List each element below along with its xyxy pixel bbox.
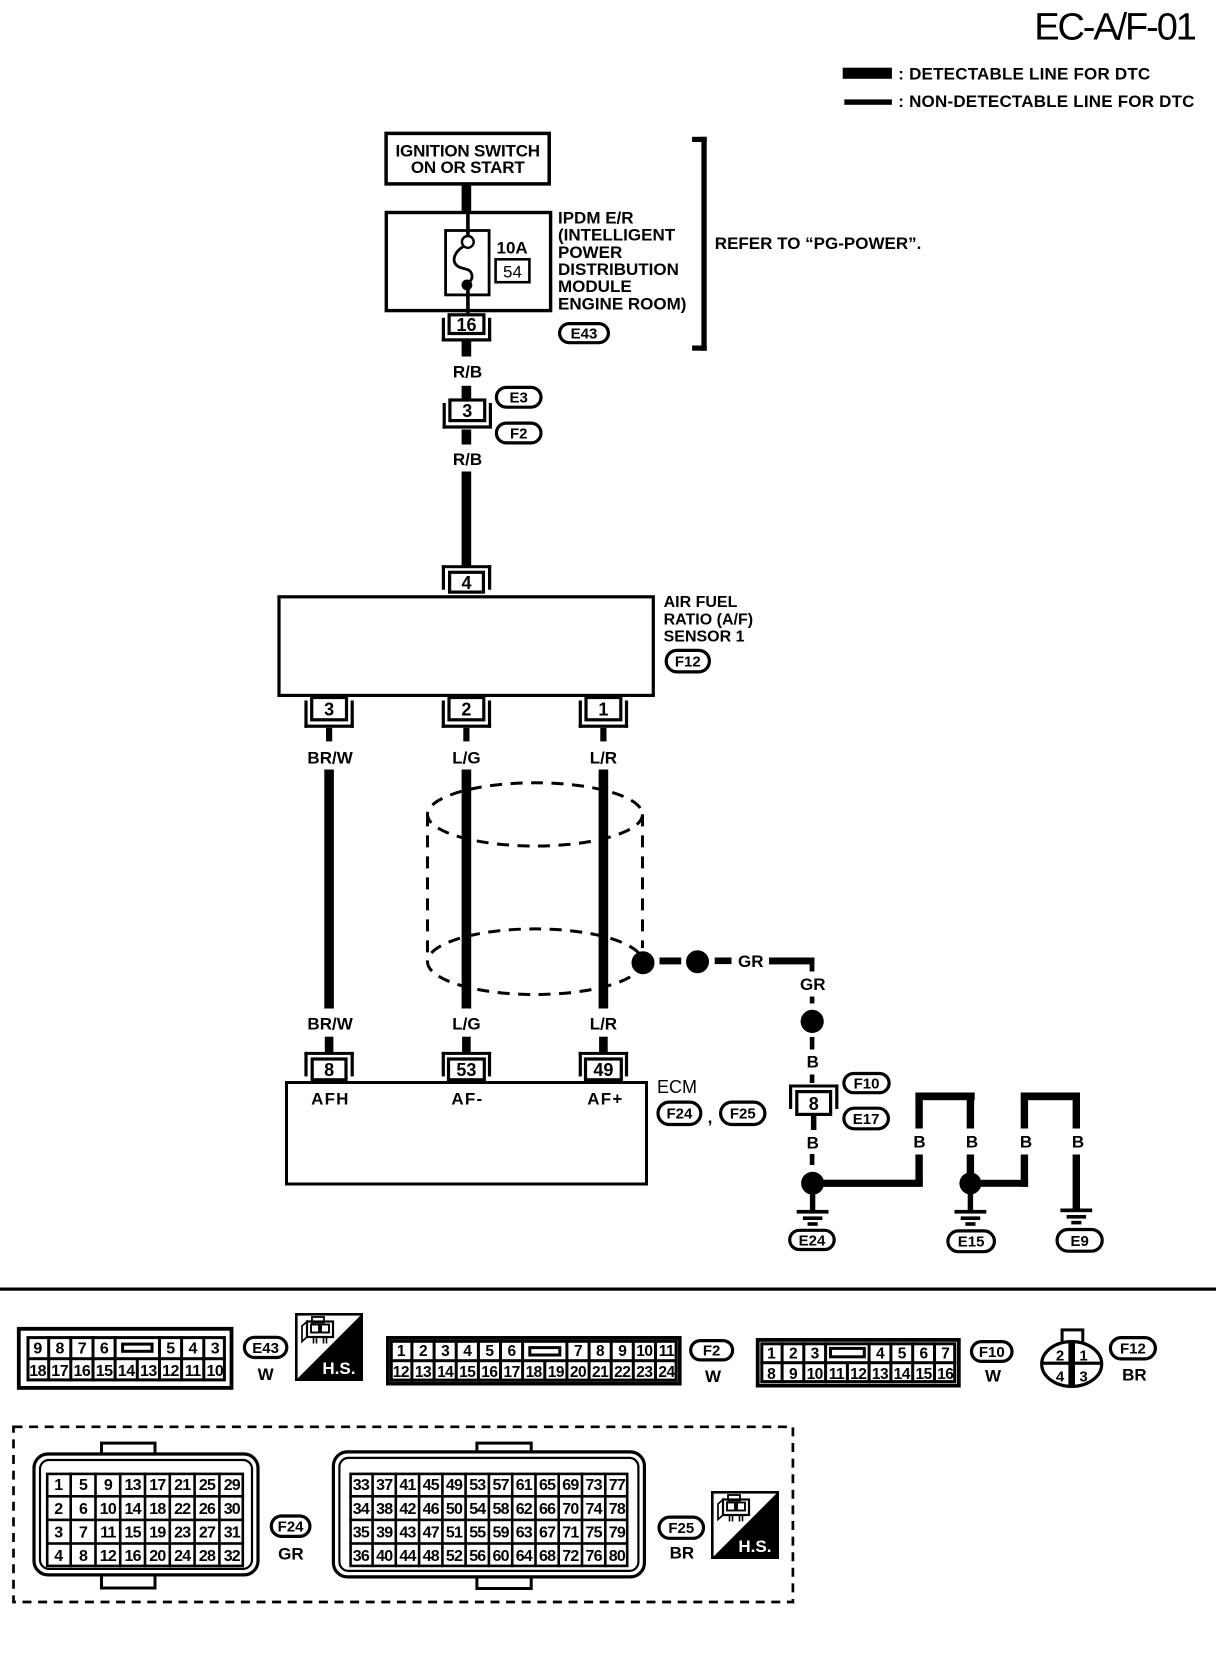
svg-text:64: 64 [516,1548,533,1565]
svg-text:1: 1 [767,1346,776,1363]
svg-text:47: 47 [423,1525,440,1542]
svg-text:AIR FUEL: AIR FUEL [664,594,738,611]
svg-text:7: 7 [78,1340,87,1357]
svg-text:34: 34 [353,1501,370,1518]
svg-text:73: 73 [585,1477,602,1494]
svg-text:66: 66 [539,1501,556,1518]
svg-text:SENSOR 1: SENSOR 1 [664,629,745,646]
svg-text:25: 25 [199,1477,216,1494]
svg-text:12: 12 [850,1366,866,1383]
svg-text:46: 46 [423,1501,440,1518]
svg-text:12: 12 [100,1548,117,1565]
svg-text:8: 8 [596,1343,605,1360]
svg-text:72: 72 [562,1548,579,1565]
svg-text:14: 14 [894,1366,911,1383]
svg-text:21: 21 [174,1477,191,1494]
svg-text:3: 3 [211,1340,220,1357]
svg-text:2: 2 [789,1346,797,1363]
svg-text:B: B [807,1134,819,1153]
svg-text:18: 18 [29,1363,46,1380]
svg-text:33: 33 [353,1477,370,1494]
svg-text:4: 4 [54,1548,63,1565]
svg-text:1: 1 [598,699,608,719]
svg-text:29: 29 [224,1477,241,1494]
svg-text:1: 1 [397,1343,406,1360]
svg-text:60: 60 [492,1548,509,1565]
svg-text:11: 11 [829,1366,845,1383]
svg-text:6: 6 [920,1346,929,1363]
svg-text:W: W [705,1367,722,1386]
svg-text:3: 3 [324,699,334,719]
svg-text:9: 9 [104,1477,113,1494]
svg-text:BR/W: BR/W [307,1015,353,1034]
svg-text:10: 10 [100,1501,117,1518]
svg-text:17: 17 [503,1364,519,1381]
svg-text:1: 1 [54,1477,63,1494]
svg-text:70: 70 [562,1501,579,1518]
svg-text:52: 52 [446,1548,463,1565]
svg-text:2: 2 [419,1343,427,1360]
svg-text:6: 6 [79,1501,88,1518]
svg-text:E43: E43 [571,326,598,343]
svg-text:B: B [807,1053,819,1072]
svg-text:13: 13 [415,1364,432,1381]
svg-text:54: 54 [469,1501,486,1518]
svg-text:76: 76 [585,1548,602,1565]
svg-text:8: 8 [55,1340,64,1357]
svg-text:75: 75 [585,1525,602,1542]
svg-text:L/G: L/G [452,748,480,767]
svg-text:10: 10 [807,1366,823,1383]
svg-text:F2: F2 [510,425,528,442]
svg-text:10A: 10A [497,238,528,257]
svg-text:19: 19 [149,1525,166,1542]
svg-text:E24: E24 [799,1232,826,1249]
svg-text:POWER: POWER [558,243,622,262]
svg-text:13: 13 [124,1477,141,1494]
svg-text:R/B: R/B [453,450,482,469]
svg-text:65: 65 [539,1477,556,1494]
svg-text:21: 21 [592,1364,609,1381]
svg-text:3: 3 [811,1346,820,1363]
svg-text:44: 44 [399,1548,416,1565]
svg-text:3: 3 [462,401,472,421]
svg-text:53: 53 [469,1477,486,1494]
svg-text:50: 50 [446,1501,463,1518]
svg-text:11: 11 [659,1343,675,1360]
svg-text:20: 20 [570,1364,586,1381]
svg-text:15: 15 [96,1363,113,1380]
svg-text:68: 68 [539,1548,556,1565]
svg-text:49: 49 [446,1477,463,1494]
svg-text:37: 37 [376,1477,393,1494]
svg-text:F25: F25 [668,1520,694,1537]
svg-text:39: 39 [376,1525,393,1542]
svg-text:5: 5 [898,1346,907,1363]
svg-text:41: 41 [399,1477,416,1494]
svg-text:L/R: L/R [590,748,617,767]
svg-text:4: 4 [463,1343,472,1360]
svg-text:71: 71 [562,1525,579,1542]
svg-text:15: 15 [915,1366,932,1383]
svg-text:B: B [913,1133,925,1152]
svg-text:12: 12 [162,1363,179,1380]
svg-text:38: 38 [376,1501,393,1518]
svg-text:11: 11 [100,1525,116,1542]
svg-text:77: 77 [609,1477,626,1494]
svg-text:10: 10 [636,1343,652,1360]
svg-text:30: 30 [224,1501,241,1518]
svg-text:AF-: AF- [451,1089,483,1108]
svg-text:16: 16 [124,1548,141,1565]
svg-text:16: 16 [937,1366,954,1383]
svg-text:4: 4 [188,1340,197,1357]
svg-text:2: 2 [461,699,471,719]
svg-text:15: 15 [459,1364,476,1381]
svg-text:7: 7 [79,1525,88,1542]
svg-text:17: 17 [51,1363,68,1380]
svg-text:16: 16 [74,1363,91,1380]
svg-text:28: 28 [199,1548,216,1565]
svg-text:E15: E15 [958,1234,985,1251]
svg-text:14: 14 [437,1364,454,1381]
svg-text:80: 80 [609,1548,626,1565]
svg-text:B: B [1020,1133,1032,1152]
svg-text:F25: F25 [730,1106,756,1123]
svg-text:ECM: ECM [657,1077,697,1097]
svg-text:23: 23 [636,1364,653,1381]
svg-text:53: 53 [456,1060,476,1080]
svg-text:54: 54 [503,263,522,282]
svg-text:40: 40 [376,1548,393,1565]
svg-text:E43: E43 [252,1340,279,1357]
svg-text:F12: F12 [1120,1341,1146,1358]
svg-text:24: 24 [658,1364,675,1381]
svg-text:ON OR START: ON OR START [411,158,525,177]
svg-text:REFER TO “PG-POWER”.: REFER TO “PG-POWER”. [715,234,922,253]
svg-text:AF+: AF+ [587,1089,623,1108]
svg-text:B: B [966,1133,978,1152]
svg-text:57: 57 [492,1477,509,1494]
svg-text:GR: GR [738,952,764,971]
svg-text:,: , [708,1108,713,1127]
svg-text:8: 8 [767,1366,776,1383]
svg-text:W: W [985,1367,1002,1386]
svg-text:4: 4 [1056,1368,1065,1385]
svg-text:B: B [1072,1133,1084,1152]
svg-text:56: 56 [469,1548,486,1565]
svg-text:32: 32 [224,1548,241,1565]
svg-text:74: 74 [585,1501,602,1518]
svg-text:L/R: L/R [590,1015,617,1034]
svg-text:67: 67 [539,1525,556,1542]
svg-text:3: 3 [441,1343,450,1360]
svg-text:35: 35 [353,1525,370,1542]
svg-text:18: 18 [526,1364,543,1381]
svg-text:F2: F2 [703,1343,721,1360]
svg-text:5: 5 [166,1340,175,1357]
svg-text:F10: F10 [979,1344,1005,1361]
svg-text:8: 8 [809,1094,819,1114]
svg-text:H.S.: H.S. [738,1537,771,1556]
svg-text:45: 45 [423,1477,440,1494]
svg-text:(INTELLIGENT: (INTELLIGENT [558,226,676,245]
svg-text:6: 6 [100,1340,109,1357]
svg-text:10: 10 [207,1363,224,1380]
svg-text:51: 51 [446,1525,463,1542]
svg-text:7: 7 [574,1343,582,1360]
svg-text:15: 15 [124,1525,141,1542]
svg-text:4: 4 [876,1346,885,1363]
svg-text:RATIO (A/F): RATIO (A/F) [664,611,753,628]
svg-text:43: 43 [399,1525,416,1542]
svg-text:W: W [258,1365,275,1384]
svg-text:22: 22 [614,1364,630,1381]
svg-text:16: 16 [481,1364,498,1381]
svg-text:F12: F12 [675,654,701,671]
svg-text:69: 69 [562,1477,579,1494]
svg-text:27: 27 [199,1525,216,1542]
svg-text:ENGINE ROOM): ENGINE ROOM) [558,294,686,313]
svg-text:14: 14 [118,1363,135,1380]
svg-text:F24: F24 [278,1519,305,1536]
svg-text:E17: E17 [853,1111,880,1128]
svg-text:31: 31 [224,1525,241,1542]
svg-text:F24: F24 [666,1106,693,1123]
svg-text:5: 5 [485,1343,494,1360]
svg-text:1: 1 [1079,1347,1087,1364]
svg-text:3: 3 [54,1525,63,1542]
svg-text:R/B: R/B [453,363,482,382]
svg-text:79: 79 [609,1525,626,1542]
svg-text:58: 58 [492,1501,509,1518]
svg-text:63: 63 [516,1525,533,1542]
svg-text:17: 17 [149,1477,166,1494]
svg-text:H.S.: H.S. [322,1359,355,1378]
svg-text:E3: E3 [510,390,528,407]
svg-text:2: 2 [54,1501,63,1518]
svg-text:BR/W: BR/W [307,748,353,767]
svg-text:IPDM E/R: IPDM E/R [558,208,634,227]
svg-text:24: 24 [174,1548,191,1565]
svg-text:48: 48 [423,1548,440,1565]
svg-text:7: 7 [941,1346,949,1363]
svg-text:BR: BR [670,1543,695,1562]
svg-text:11: 11 [185,1363,202,1380]
svg-text:49: 49 [593,1060,613,1080]
svg-text:12: 12 [393,1364,409,1381]
svg-text:20: 20 [149,1548,166,1565]
svg-text:MODULE: MODULE [558,277,632,296]
svg-text:22: 22 [174,1501,191,1518]
svg-text:42: 42 [399,1501,416,1518]
svg-text:: DETECTABLE LINE FOR DTC: : DETECTABLE LINE FOR DTC [898,65,1150,84]
svg-text:8: 8 [79,1548,88,1565]
svg-text:62: 62 [516,1501,533,1518]
svg-text:78: 78 [609,1501,626,1518]
svg-text:BR: BR [1122,1365,1147,1384]
svg-text:18: 18 [149,1501,166,1518]
svg-text:26: 26 [199,1501,216,1518]
svg-text:2: 2 [1056,1347,1064,1364]
svg-text:4: 4 [461,573,471,593]
svg-text:E9: E9 [1071,1233,1089,1250]
svg-text:23: 23 [174,1525,191,1542]
svg-text:55: 55 [469,1525,486,1542]
svg-text:16: 16 [456,315,476,335]
svg-text:36: 36 [353,1548,370,1565]
svg-text:EC-A/F-01: EC-A/F-01 [1034,7,1196,49]
svg-text:14: 14 [124,1501,141,1518]
svg-text:13: 13 [140,1363,157,1380]
svg-text:61: 61 [516,1477,533,1494]
svg-text:AFH: AFH [311,1089,350,1108]
svg-text:6: 6 [508,1343,517,1360]
svg-text:DISTRIBUTION: DISTRIBUTION [558,260,679,279]
svg-text:GR: GR [278,1545,304,1564]
svg-text:19: 19 [548,1364,565,1381]
svg-text:5: 5 [79,1477,88,1494]
svg-text:59: 59 [492,1525,509,1542]
svg-text:F10: F10 [854,1076,880,1093]
svg-text:: NON-DETECTABLE LINE FOR DTC: : NON-DETECTABLE LINE FOR DTC [898,92,1194,111]
svg-text:13: 13 [872,1366,889,1383]
svg-text:GR: GR [800,975,826,994]
svg-text:3: 3 [1079,1368,1087,1385]
svg-text:8: 8 [324,1060,334,1080]
svg-text:L/G: L/G [452,1015,480,1034]
svg-text:9: 9 [789,1366,798,1383]
svg-text:9: 9 [33,1340,42,1357]
svg-text:9: 9 [618,1343,627,1360]
